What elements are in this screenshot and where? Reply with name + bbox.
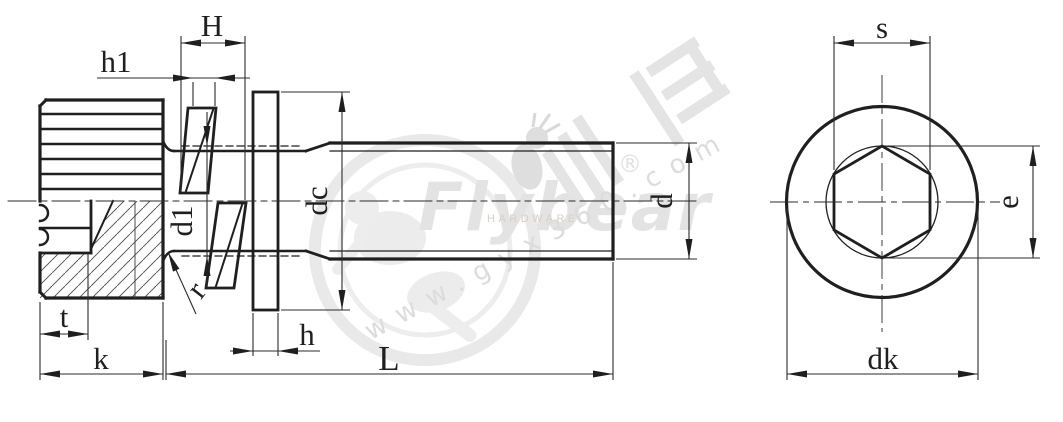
label-k: k: [93, 341, 109, 376]
label-h1: h1: [101, 44, 132, 79]
section-hatching: [40, 201, 163, 298]
label-t: t: [60, 299, 69, 334]
label-H: H: [201, 8, 223, 43]
label-s: s: [876, 10, 888, 45]
label-dk: dk: [868, 341, 900, 376]
label-d1: d1: [164, 206, 199, 237]
label-e: e: [990, 195, 1025, 209]
side-view: [8, 92, 700, 310]
label-L: L: [378, 339, 399, 378]
label-dc: dc: [299, 186, 334, 215]
spring-washer-lower-coil: [206, 203, 246, 288]
screw-technical-drawing: Flybear HARDWARE ® www.gyx360.com: [0, 0, 1063, 422]
label-h: h: [299, 317, 315, 352]
knurling-lines: [42, 114, 161, 189]
label-d: d: [644, 193, 679, 209]
engineering-drawing-canvas: Flybear HARDWARE ® www.gyx360.com: [0, 0, 1063, 422]
end-view: [770, 75, 1000, 332]
